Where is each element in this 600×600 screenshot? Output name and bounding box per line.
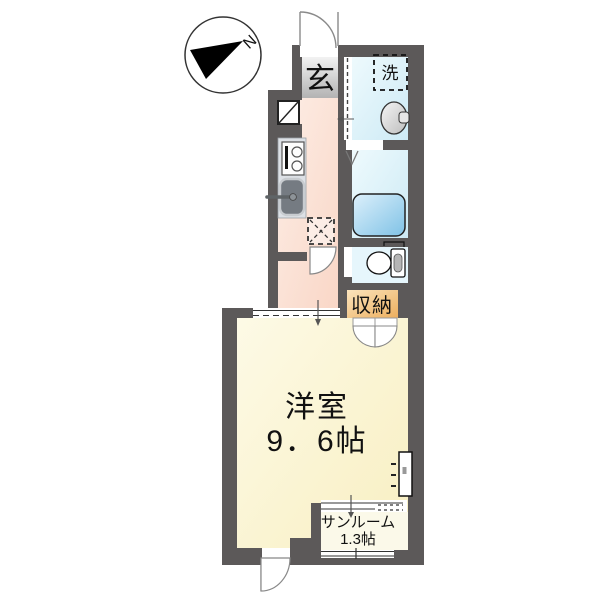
floor-plan: N 洗 — [0, 0, 600, 600]
entrance-label: 玄 — [305, 63, 335, 96]
wall-segment — [222, 318, 237, 565]
compass-icon: N — [185, 17, 261, 93]
floor-hatch-icon — [308, 218, 334, 244]
wall-segment — [317, 557, 424, 565]
wall-segment — [278, 124, 302, 138]
swing-door-bottom — [261, 558, 290, 591]
laundry-label: 洗 — [382, 64, 399, 83]
wall-segment — [222, 308, 253, 318]
wall-segment — [268, 90, 302, 100]
entrance-door-swing — [300, 12, 338, 48]
wall-segment — [268, 252, 307, 261]
toilet-opening — [344, 247, 352, 277]
bathtub-icon — [353, 194, 405, 236]
bathroom-opening — [346, 140, 383, 150]
wall-segment — [268, 100, 278, 308]
main-room-size-label: 9．6帖 — [266, 425, 367, 458]
wall-segment — [222, 548, 262, 565]
floor-plan-canvas: N 洗 — [0, 0, 600, 600]
stove-icon — [282, 142, 304, 175]
wall-segment — [338, 140, 352, 247]
shoe-cabinet-symbol — [278, 101, 299, 124]
wall-segment — [338, 57, 344, 140]
wall-segment — [311, 503, 321, 565]
storage-label: 収納 — [351, 294, 393, 317]
sunroom-name-label: サンルーム — [321, 514, 396, 531]
entrance-opening — [300, 45, 338, 57]
door-arc — [300, 12, 336, 48]
sunroom-size-label: 1.3帖 — [340, 531, 376, 548]
hall-divider-track — [344, 57, 352, 140]
main-room-name-label: 洋室 — [285, 391, 349, 424]
terrace-opening — [262, 548, 290, 558]
